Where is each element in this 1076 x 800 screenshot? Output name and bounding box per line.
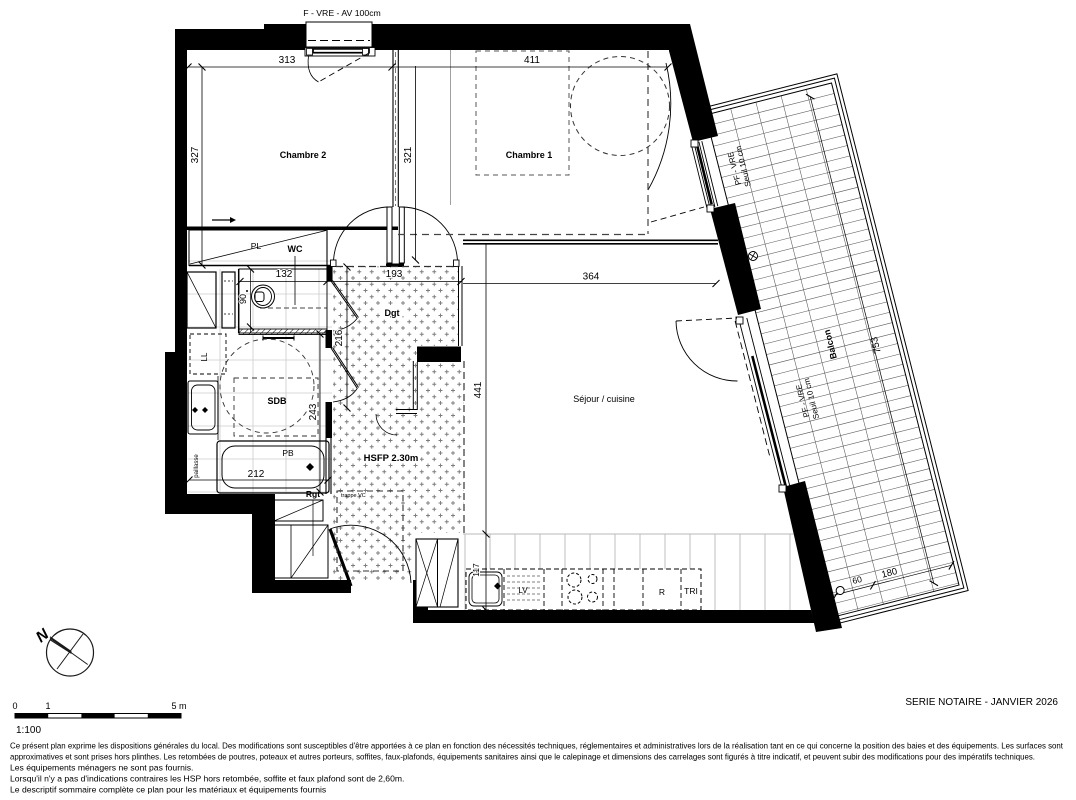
svg-text:5 m: 5 m [171, 701, 186, 711]
svg-text:321: 321 [403, 146, 414, 163]
svg-text:411: 411 [524, 55, 540, 66]
svg-text:approximatives et sont prises: approximatives et sont prises hors plint… [10, 752, 1035, 762]
svg-text:313: 313 [279, 55, 296, 66]
svg-text:WC: WC [288, 244, 303, 254]
svg-text:trappe VC: trappe VC [341, 493, 366, 499]
svg-text:LL: LL [200, 352, 209, 361]
svg-text:364: 364 [583, 272, 600, 283]
svg-text:193: 193 [386, 269, 403, 280]
svg-text:Chambre 1: Chambre 1 [506, 150, 553, 160]
svg-text:Séjour / cuisine: Séjour / cuisine [573, 394, 635, 404]
svg-text:Dgt: Dgt [385, 308, 400, 318]
svg-text:PL: PL [251, 241, 262, 251]
svg-text:327: 327 [190, 146, 201, 163]
svg-text:441: 441 [473, 381, 484, 398]
svg-text:90: 90 [238, 294, 248, 304]
svg-text:HSFP 2.30m: HSFP 2.30m [364, 453, 419, 464]
svg-text:paillasse: paillasse [194, 454, 200, 478]
svg-text:1: 1 [45, 701, 50, 711]
svg-text:R: R [659, 587, 665, 597]
svg-text:SDB: SDB [267, 396, 287, 406]
svg-text:0: 0 [12, 701, 17, 711]
svg-text:Lorsqu'il n'y a pas d'indicati: Lorsqu'il n'y a pas d'indications contra… [10, 774, 404, 784]
svg-text:117: 117 [471, 563, 481, 577]
svg-text:F - VRE - AV 100cm: F - VRE - AV 100cm [303, 8, 381, 18]
svg-text:Ce présent plan exprime les di: Ce présent plan exprime les dispositions… [10, 741, 1064, 751]
svg-text:Les équipements ménagers ne so: Les équipements ménagers ne sont pas fou… [10, 763, 193, 773]
svg-text:SERIE NOTAIRE - JANVIER 2026: SERIE NOTAIRE - JANVIER 2026 [905, 697, 1058, 708]
svg-text:243: 243 [308, 403, 319, 420]
svg-text:Chambre 2: Chambre 2 [280, 150, 327, 160]
svg-text:132: 132 [276, 269, 293, 280]
svg-text:PB: PB [282, 448, 294, 458]
svg-text:Le descriptif sommaire complèt: Le descriptif sommaire complète ce plan … [10, 785, 326, 795]
svg-text:TRI: TRI [684, 586, 698, 596]
svg-text:1:100: 1:100 [16, 725, 41, 736]
svg-text:216: 216 [334, 329, 345, 346]
svg-text:212: 212 [248, 469, 265, 480]
